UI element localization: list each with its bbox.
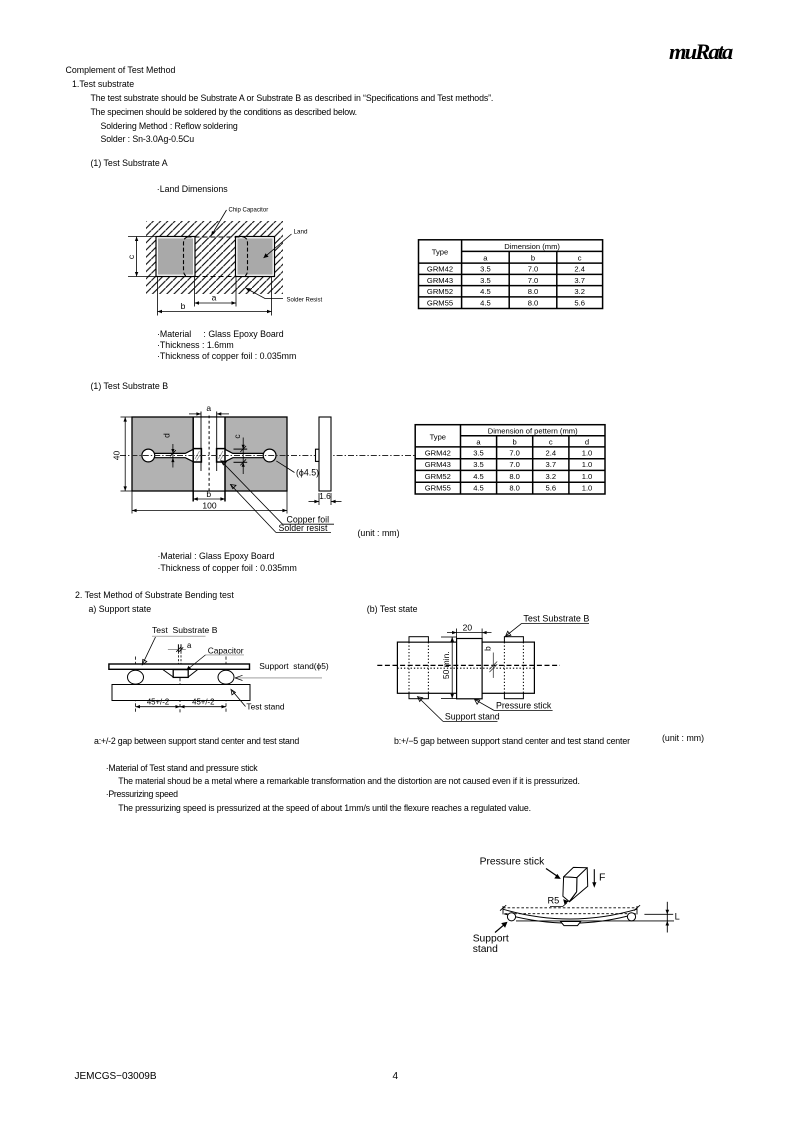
- svg-text:2.4: 2.4: [546, 449, 557, 458]
- svg-text:Solder Resist: Solder Resist: [287, 297, 323, 303]
- svg-text:GRM43: GRM43: [427, 276, 453, 285]
- svg-text:Type: Type: [430, 433, 446, 442]
- svg-text:1.0: 1.0: [582, 472, 593, 481]
- svg-text:Dimension (mm): Dimension (mm): [504, 242, 560, 251]
- svg-text:5.6: 5.6: [546, 484, 557, 493]
- svg-text:a: a: [476, 438, 481, 447]
- svg-text:Test Substrate B: Test Substrate B: [523, 614, 589, 624]
- svg-text:4.5: 4.5: [480, 287, 491, 296]
- svg-text:8.0: 8.0: [509, 472, 520, 481]
- svg-text:2.4: 2.4: [574, 265, 585, 274]
- svg-text:Dimension of pettern (mm): Dimension of pettern (mm): [488, 427, 578, 436]
- svg-text:45+/-2: 45+/-2: [147, 697, 169, 706]
- svg-text:4.5: 4.5: [473, 472, 484, 481]
- svg-text:3.5: 3.5: [480, 276, 491, 285]
- svg-text:Test Substrate B: Test Substrate B: [152, 625, 218, 635]
- svg-text:Support stand(ϕ5): Support stand(ϕ5): [259, 661, 329, 671]
- svg-text:1.0: 1.0: [582, 460, 593, 469]
- svg-text:3.7: 3.7: [546, 460, 557, 469]
- svg-text:Chip Capacitor: Chip Capacitor: [229, 207, 269, 213]
- svg-text:3.5: 3.5: [480, 265, 491, 274]
- svg-text:1.0: 1.0: [582, 449, 593, 458]
- svg-text:GRM42: GRM42: [427, 265, 453, 274]
- svg-text:a: a: [206, 403, 211, 413]
- svg-text:Support stand: Support stand: [445, 712, 500, 722]
- svg-text:c: c: [232, 434, 242, 439]
- svg-text:50 min.: 50 min.: [441, 651, 451, 679]
- svg-text:b: b: [181, 301, 186, 311]
- svg-text:4.5: 4.5: [480, 298, 491, 307]
- svg-text:40: 40: [112, 451, 122, 461]
- svg-text:R5: R5: [548, 896, 560, 906]
- svg-text:b: b: [512, 438, 516, 447]
- svg-text:20: 20: [463, 622, 473, 632]
- svg-text:7.0: 7.0: [528, 265, 539, 274]
- svg-text:b: b: [531, 254, 535, 263]
- svg-text:3.2: 3.2: [574, 287, 585, 296]
- svg-text:Land: Land: [294, 229, 309, 236]
- svg-text:a: a: [212, 293, 217, 303]
- svg-text:100: 100: [202, 501, 216, 511]
- svg-text:GRM43: GRM43: [425, 460, 451, 469]
- svg-text:7.0: 7.0: [528, 276, 539, 285]
- svg-text:GRM52: GRM52: [425, 472, 451, 481]
- svg-text:c: c: [126, 254, 136, 259]
- svg-text:Capacitor: Capacitor: [208, 645, 244, 655]
- svg-text:45+/-2: 45+/-2: [192, 697, 214, 706]
- svg-text:GRM55: GRM55: [425, 484, 451, 493]
- svg-text:Pressure stick: Pressure stick: [496, 701, 552, 711]
- svg-text:7.0: 7.0: [509, 449, 520, 458]
- svg-text:3.5: 3.5: [473, 449, 484, 458]
- svg-text:a: a: [483, 254, 488, 263]
- svg-text:Test stand: Test stand: [246, 702, 285, 712]
- svg-text:d: d: [162, 433, 172, 438]
- svg-text:F: F: [599, 872, 605, 884]
- svg-text:Type: Type: [432, 248, 448, 257]
- svg-text:1.6: 1.6: [319, 492, 331, 501]
- svg-text:3.2: 3.2: [546, 472, 557, 481]
- svg-text:L: L: [675, 912, 680, 922]
- svg-text:a: a: [187, 641, 192, 650]
- svg-text:8.0: 8.0: [528, 287, 539, 296]
- svg-text:stand: stand: [473, 944, 498, 955]
- svg-text:5.6: 5.6: [574, 298, 585, 307]
- svg-text:Support: Support: [473, 933, 509, 944]
- svg-text:3.7: 3.7: [574, 276, 585, 285]
- svg-text:b: b: [206, 489, 211, 499]
- svg-text:GRM55: GRM55: [427, 298, 453, 307]
- svg-text:8.0: 8.0: [528, 298, 539, 307]
- svg-text:GRM42: GRM42: [425, 449, 451, 458]
- svg-text:4.5: 4.5: [473, 484, 484, 493]
- svg-text:8.0: 8.0: [509, 484, 520, 493]
- svg-text:3.5: 3.5: [473, 460, 484, 469]
- svg-text:d: d: [585, 438, 589, 447]
- svg-text:c: c: [549, 438, 553, 447]
- svg-text:(ϕ4.5): (ϕ4.5): [296, 468, 319, 478]
- svg-text:c: c: [578, 254, 582, 263]
- svg-text:Pressure stick: Pressure stick: [480, 856, 546, 867]
- svg-text:7.0: 7.0: [509, 460, 520, 469]
- svg-text:GRM52: GRM52: [427, 287, 453, 296]
- svg-text:b: b: [482, 646, 492, 651]
- svg-text:Solder resist: Solder resist: [279, 523, 328, 533]
- svg-text:1.0: 1.0: [582, 484, 593, 493]
